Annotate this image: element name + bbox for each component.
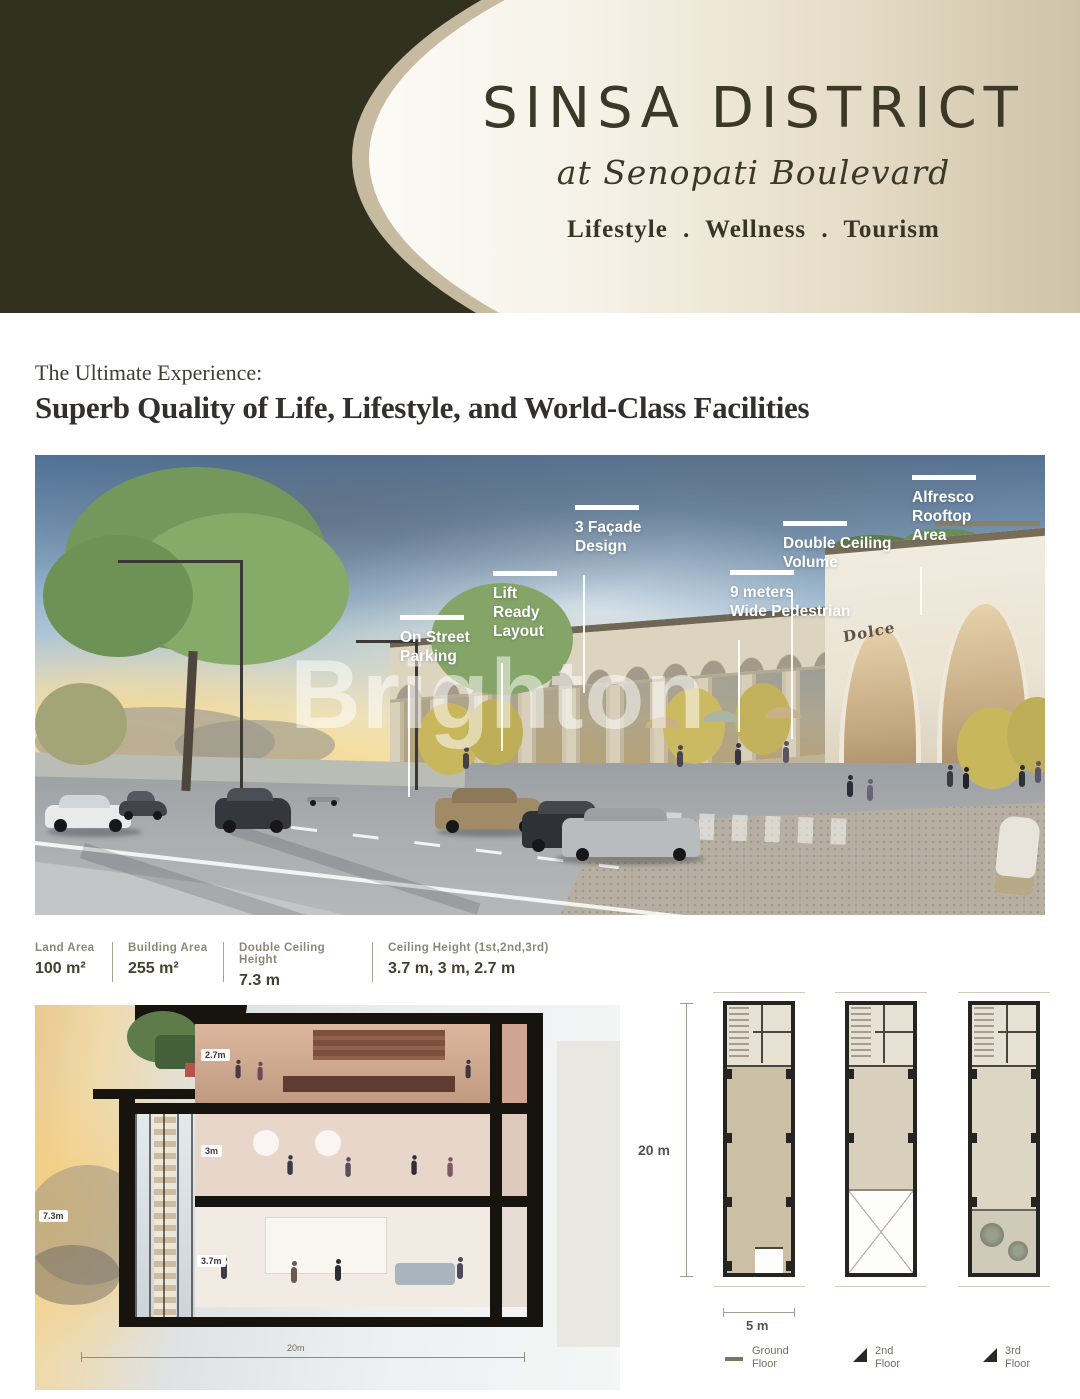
spec-label: Ceiling Height (1st,2nd,3rd)	[388, 942, 549, 954]
callout-bar	[912, 475, 976, 480]
annex-wall	[490, 1024, 502, 1327]
third-floor-interior	[195, 1024, 490, 1103]
store-signboard	[265, 1217, 387, 1274]
dimension-tick	[524, 1352, 525, 1362]
spec-value: 3.7 m, 3 m, 2.7 m	[388, 960, 549, 978]
dim-depth-label: 20m	[287, 1343, 305, 1353]
intro-section: The Ultimate Experience: Superb Quality …	[35, 360, 809, 426]
plan-guide	[713, 992, 805, 993]
callout-text: Ready	[493, 604, 557, 623]
dim-tick	[794, 1308, 795, 1317]
person	[291, 1261, 298, 1284]
dim-pill-second: 3m	[201, 1145, 222, 1157]
annex-room	[502, 1207, 527, 1307]
callout-text: 3 Façade	[575, 519, 641, 538]
street-lamp	[240, 560, 243, 802]
plan-width-label: 5 m	[746, 1318, 768, 1333]
section-view-render: 2.7m 3m 3.7m 7.3m 20m	[35, 1005, 620, 1390]
plan-plant	[1008, 1241, 1028, 1261]
plan-service-rooms	[753, 1005, 791, 1063]
third-floor-icon	[983, 1348, 997, 1362]
spec-label: Double Ceiling Height	[239, 942, 357, 966]
plan-guide	[958, 992, 1050, 993]
plan-ground-floor	[723, 1001, 795, 1277]
person	[287, 1155, 293, 1176]
callout-bar	[783, 521, 847, 526]
roof-slab	[135, 1013, 535, 1024]
plan-third-floor	[968, 1001, 1040, 1277]
callout-bar	[400, 615, 464, 620]
adjacent-building	[557, 1041, 620, 1347]
spec-strip: Land Area 100 m² Building Area 255 m² Do…	[35, 942, 549, 990]
salon-mirror	[315, 1130, 341, 1156]
callout-facade-design: 3 Façade Design	[575, 505, 641, 557]
legend-line: Floor	[752, 1358, 789, 1371]
plan-void	[849, 1189, 913, 1273]
person	[457, 1257, 464, 1280]
callout-text: Area	[912, 527, 976, 546]
floor-slab	[135, 1103, 527, 1114]
terrace-person	[185, 1063, 195, 1077]
bar-counter	[283, 1076, 455, 1092]
pedestrian	[783, 741, 790, 764]
atrium-mullions	[135, 1114, 195, 1327]
header: SINSA DISTRICT at Senopati Boulevard Lif…	[0, 0, 1080, 313]
callout-text: On Street	[400, 629, 470, 648]
plan-service-rooms	[998, 1005, 1036, 1063]
person	[335, 1259, 342, 1282]
callout-leader-line	[791, 591, 793, 739]
pedestrian	[735, 743, 742, 766]
car-silhouette	[119, 791, 167, 819]
person	[466, 1060, 472, 1080]
person	[447, 1157, 453, 1178]
callout-leader-line	[920, 567, 922, 615]
spec-land-area: Land Area 100 m²	[35, 942, 97, 978]
brand-tagline: Lifestyle . Wellness . Tourism	[435, 216, 1072, 244]
bar-shelves	[313, 1030, 445, 1060]
legend-line: Floor	[875, 1358, 900, 1371]
plan-service-rooms	[875, 1005, 913, 1063]
callout-double-ceiling-volume: Double Ceiling Volume	[783, 521, 892, 573]
intro-kicker: The Ultimate Experience:	[35, 360, 809, 386]
scooter	[993, 815, 1041, 897]
spec-ceiling-height: Ceiling Height (1st,2nd,3rd) 3.7 m, 3 m,…	[388, 942, 549, 978]
dimension-tick	[81, 1352, 82, 1362]
callout-text: Design	[575, 538, 641, 557]
callout-lift-ready-layout: Lift Ready Layout	[493, 571, 557, 642]
tree-canopy	[43, 535, 193, 657]
plan-width-dim-line	[723, 1312, 795, 1313]
sports-car-silhouette	[562, 808, 700, 860]
callout-bar	[575, 505, 639, 510]
callout-text: Volume	[783, 554, 892, 573]
plan-guide	[713, 1286, 805, 1287]
legend-second-floor: 2nd Floor	[875, 1345, 900, 1371]
callout-text: Double Ceiling	[783, 535, 892, 554]
person	[236, 1060, 242, 1080]
legend-third-floor: 3rd Floor	[1005, 1345, 1030, 1371]
callout-bar	[493, 571, 557, 576]
legend-line: 2nd	[875, 1345, 900, 1358]
callout-text: Parking	[400, 648, 470, 667]
car-silhouette	[215, 788, 291, 832]
spec-value: 100 m²	[35, 960, 97, 978]
brand-subtitle: at Senopati Boulevard	[435, 153, 1072, 192]
spec-label: Building Area	[128, 942, 208, 954]
person	[345, 1157, 351, 1178]
left-pillar	[119, 1089, 135, 1327]
callout-leader-line	[738, 640, 740, 732]
pedestrian	[867, 779, 874, 802]
plan-guide	[835, 992, 927, 993]
spec-divider	[112, 942, 113, 982]
atrium-glass	[135, 1114, 195, 1327]
plan-stair-zone	[849, 1005, 913, 1067]
person	[411, 1155, 417, 1176]
callout-on-street-parking: On Street Parking	[400, 615, 470, 667]
plan-guide	[958, 1286, 1050, 1287]
callout-text: Rooftop	[912, 508, 976, 527]
floor-plans: 20 m	[630, 990, 1050, 1395]
street-tree	[35, 683, 127, 765]
plan-stair-zone	[727, 1005, 791, 1067]
dimension-line	[81, 1357, 525, 1358]
callout-text: Alfresco	[912, 489, 976, 508]
plan-second-floor	[845, 1001, 917, 1277]
person	[258, 1062, 264, 1082]
salon-mirror	[253, 1130, 279, 1156]
spec-divider	[223, 942, 224, 982]
plan-height-dim-line	[686, 1003, 687, 1277]
annex-room	[502, 1024, 527, 1103]
pedestrian	[847, 775, 854, 798]
right-wall	[527, 1013, 543, 1327]
callout-leader-line	[408, 685, 410, 797]
dim-tick	[680, 1276, 693, 1277]
second-floor-interior	[195, 1114, 490, 1196]
ground-floor-icon	[725, 1357, 743, 1361]
legend-line: Floor	[1005, 1358, 1030, 1371]
callout-leader-line	[501, 663, 503, 751]
legend-ground-floor: Ground Floor	[752, 1345, 789, 1371]
brand-block: SINSA DISTRICT at Senopati Boulevard Lif…	[435, 76, 1072, 244]
dim-tick	[680, 1003, 693, 1004]
callout-text: Layout	[493, 623, 557, 642]
spec-divider	[372, 942, 373, 982]
dim-tick	[723, 1308, 724, 1317]
pedestrian	[963, 767, 970, 790]
dim-pill-first: 3.7m	[197, 1255, 226, 1267]
second-floor-icon	[853, 1348, 867, 1362]
dim-pill-double-ceiling: 7.3m	[39, 1210, 68, 1222]
plan-stair-zone	[972, 1005, 1036, 1067]
plan-stairs	[729, 1007, 749, 1061]
plan-terrace	[972, 1209, 1036, 1273]
street-render: Dolce	[35, 455, 1045, 915]
flyer-page: SINSA DISTRICT at Senopati Boulevard Lif…	[0, 0, 1080, 1399]
street-context	[35, 1245, 120, 1305]
callout-alfresco-rooftop-area: Alfresco Rooftop Area	[912, 475, 976, 546]
dim-pill-third: 2.7m	[201, 1049, 230, 1061]
brand-title: SINSA DISTRICT	[435, 76, 1072, 141]
plan-plant	[980, 1223, 1004, 1247]
spec-double-ceiling-height: Double Ceiling Height 7.3 m	[239, 942, 357, 990]
spec-building-area: Building Area 255 m²	[128, 942, 208, 978]
legend-line: Ground	[752, 1345, 789, 1358]
callout-leader-line	[583, 575, 585, 693]
legend-line: 3rd	[1005, 1345, 1030, 1358]
spec-value: 7.3 m	[239, 972, 357, 990]
callout-text: Lift	[493, 585, 557, 604]
pedestrian	[1019, 765, 1026, 788]
display-furniture	[395, 1263, 455, 1285]
spec-label: Land Area	[35, 942, 97, 954]
floor-slab	[183, 1196, 527, 1207]
pedestrian	[947, 765, 954, 788]
plan-height-label: 20 m	[638, 1142, 670, 1158]
pedestrian	[1035, 761, 1042, 784]
plan-stairs	[974, 1007, 994, 1061]
plan-guide	[835, 1286, 927, 1287]
base-slab	[119, 1317, 527, 1327]
plan-entry	[755, 1247, 783, 1273]
spec-value: 255 m²	[128, 960, 208, 978]
annex-room	[502, 1114, 527, 1196]
brighton-watermark: Brighton	[290, 638, 706, 751]
intro-headline: Superb Quality of Life, Lifestyle, and W…	[35, 390, 809, 426]
ground-floor-interior	[195, 1207, 490, 1307]
car-silhouette	[307, 787, 340, 805]
plan-stairs	[851, 1007, 871, 1061]
